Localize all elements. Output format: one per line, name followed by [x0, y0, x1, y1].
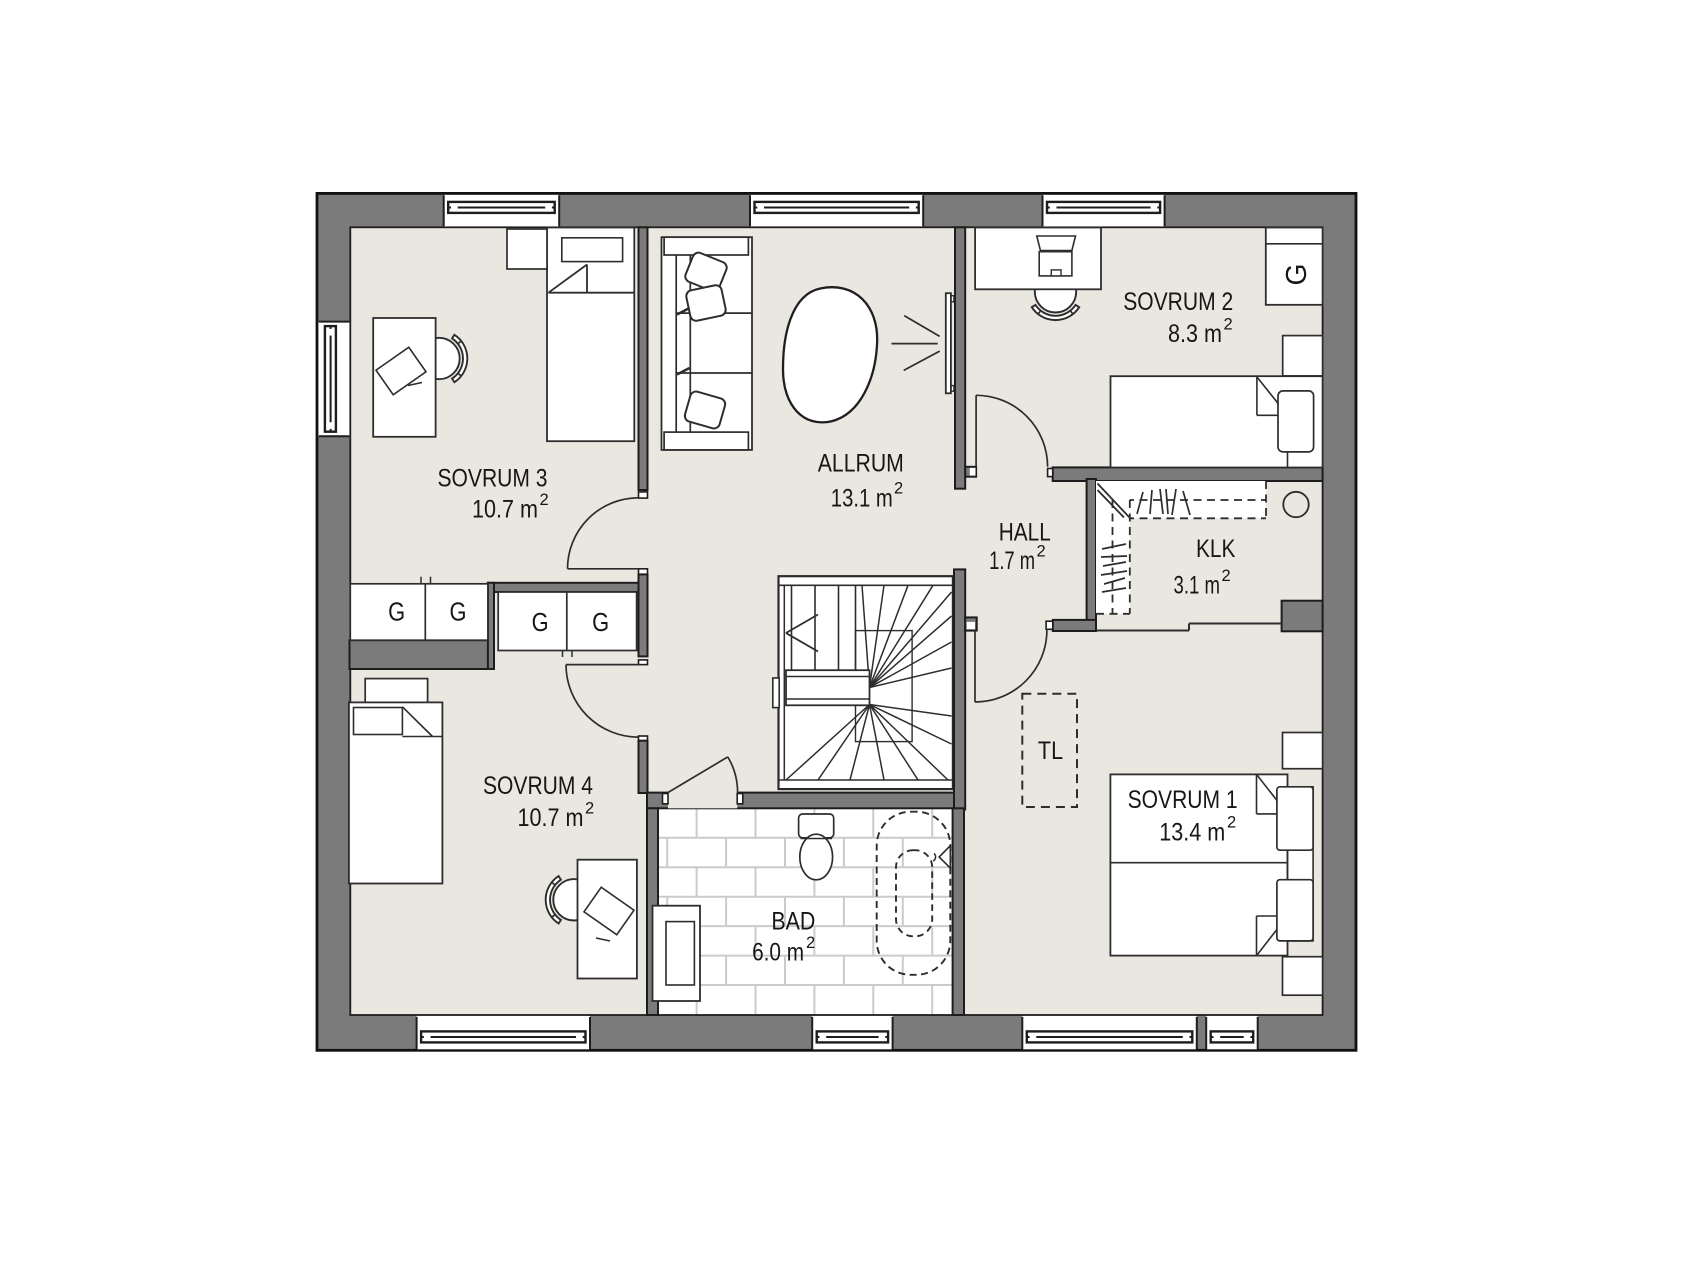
svg-text:SOVRUM 1: SOVRUM 1 — [1128, 786, 1238, 814]
svg-text:2: 2 — [1037, 543, 1046, 561]
svg-text:G: G — [1281, 264, 1313, 286]
svg-text:2: 2 — [585, 800, 594, 818]
svg-text:SOVRUM 2: SOVRUM 2 — [1123, 288, 1233, 316]
svg-text:1.7 m: 1.7 m — [989, 547, 1035, 575]
svg-text:2: 2 — [1227, 814, 1236, 832]
svg-text:2: 2 — [806, 934, 815, 952]
svg-text:3.1 m: 3.1 m — [1174, 572, 1221, 600]
svg-text:2: 2 — [1222, 567, 1231, 585]
svg-text:10.7 m: 10.7 m — [472, 496, 538, 524]
svg-text:G: G — [592, 607, 609, 637]
svg-text:G: G — [388, 597, 405, 627]
svg-text:TL: TL — [1038, 737, 1063, 765]
svg-text:2: 2 — [1224, 316, 1233, 334]
svg-text:KLK: KLK — [1196, 535, 1236, 563]
svg-text:13.1 m: 13.1 m — [831, 485, 893, 513]
svg-text:SOVRUM 4: SOVRUM 4 — [483, 772, 593, 800]
svg-text:13.4 m: 13.4 m — [1159, 818, 1225, 846]
svg-text:8.3 m: 8.3 m — [1168, 320, 1222, 348]
svg-text:10.7 m: 10.7 m — [518, 804, 584, 832]
svg-text:SOVRUM 3: SOVRUM 3 — [438, 465, 548, 493]
svg-text:2: 2 — [540, 491, 549, 509]
svg-text:ALLRUM: ALLRUM — [818, 449, 904, 477]
svg-text:BAD: BAD — [771, 908, 815, 936]
svg-text:2: 2 — [894, 480, 903, 498]
svg-text:6.0 m: 6.0 m — [752, 939, 804, 967]
svg-text:G: G — [532, 607, 549, 637]
svg-text:G: G — [450, 597, 467, 627]
